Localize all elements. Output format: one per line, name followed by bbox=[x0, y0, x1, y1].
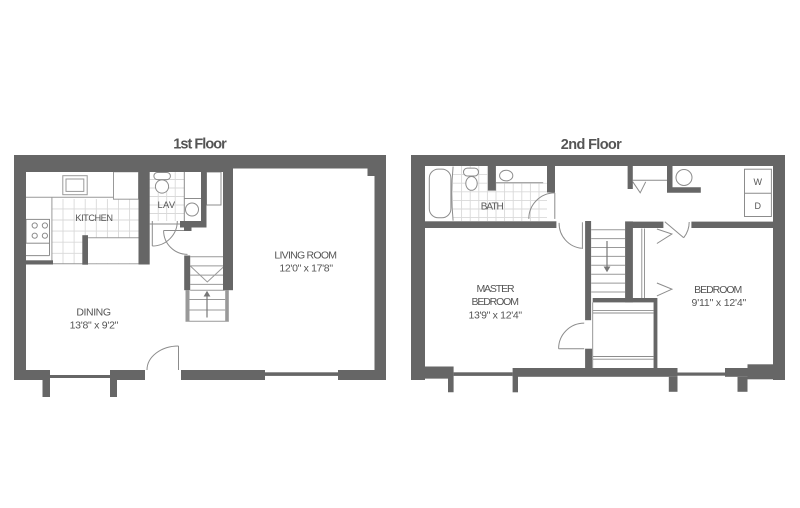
svg-text:W: W bbox=[754, 177, 763, 187]
svg-text:BEDROOM: BEDROOM bbox=[471, 296, 519, 308]
svg-text:BATH: BATH bbox=[481, 201, 504, 212]
svg-text:13'9" x 12'4": 13'9" x 12'4" bbox=[468, 310, 522, 322]
svg-text:12'0" x 17'8": 12'0" x 17'8" bbox=[279, 263, 333, 275]
svg-text:D: D bbox=[755, 201, 762, 211]
svg-text:13'8" x 9'2": 13'8" x 9'2" bbox=[70, 320, 119, 332]
svg-text:1st Floor: 1st Floor bbox=[173, 137, 227, 153]
svg-text:LAV: LAV bbox=[157, 199, 175, 210]
svg-text:DINING: DINING bbox=[76, 307, 111, 319]
svg-text:2nd Floor: 2nd Floor bbox=[561, 137, 622, 153]
svg-text:MASTER: MASTER bbox=[476, 283, 515, 295]
svg-text:BEDROOM: BEDROOM bbox=[694, 284, 742, 296]
svg-text:KITCHEN: KITCHEN bbox=[75, 213, 113, 223]
svg-text:LIVING ROOM: LIVING ROOM bbox=[274, 250, 337, 262]
svg-text:9'11" x 12'4": 9'11" x 12'4" bbox=[692, 297, 747, 309]
